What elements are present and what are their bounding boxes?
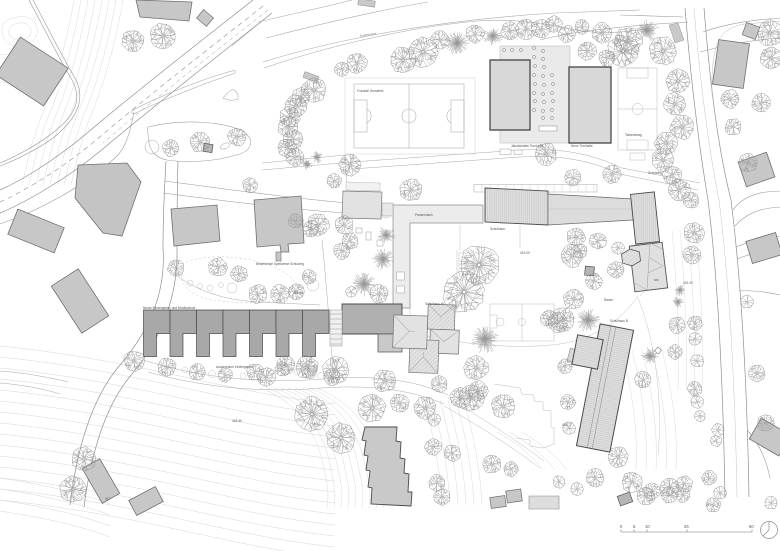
svg-text:419.00: 419.00 [293, 291, 303, 295]
svg-text:419.00: 419.00 [520, 251, 530, 255]
svg-text:417: 417 [105, 497, 111, 501]
svg-text:Schulhaus B: Schulhaus B [610, 319, 628, 323]
svg-text:Schulhaus W: Schulhaus W [425, 302, 444, 306]
svg-text:50: 50 [749, 524, 754, 529]
svg-text:418.77: 418.77 [562, 423, 572, 427]
svg-text:Fussball Grossfeld: Fussball Grossfeld [357, 89, 384, 93]
svg-text:Schulweg: Schulweg [648, 171, 662, 175]
svg-text:25: 25 [684, 524, 689, 529]
svg-text:Schulhaus: Schulhaus [490, 227, 505, 231]
svg-text:n/a: n/a [654, 278, 659, 282]
svg-text:Rasen: Rasen [604, 298, 613, 302]
svg-text:Tartanbelag: Tartanbelag [625, 133, 642, 137]
svg-text:Aussenraum Kindergarten: Aussenraum Kindergarten [216, 365, 253, 369]
svg-text:10: 10 [645, 524, 650, 529]
svg-text:Pausendach: Pausendach [415, 213, 433, 217]
svg-text:Jakobshalde Turnhalle: Jakobshalde Turnhalle [511, 144, 543, 148]
svg-text:Bestehende Spielwiese Schulweg: Bestehende Spielwiese Schulweg [256, 262, 304, 266]
svg-text:Neue Turnhalle: Neue Turnhalle [571, 144, 593, 148]
svg-text:418.50: 418.50 [232, 419, 242, 423]
svg-text:Neuer Kindergarten und Musiksc: Neuer Kindergarten und Musikschule [143, 306, 196, 310]
svg-text:419.20: 419.20 [683, 281, 693, 285]
